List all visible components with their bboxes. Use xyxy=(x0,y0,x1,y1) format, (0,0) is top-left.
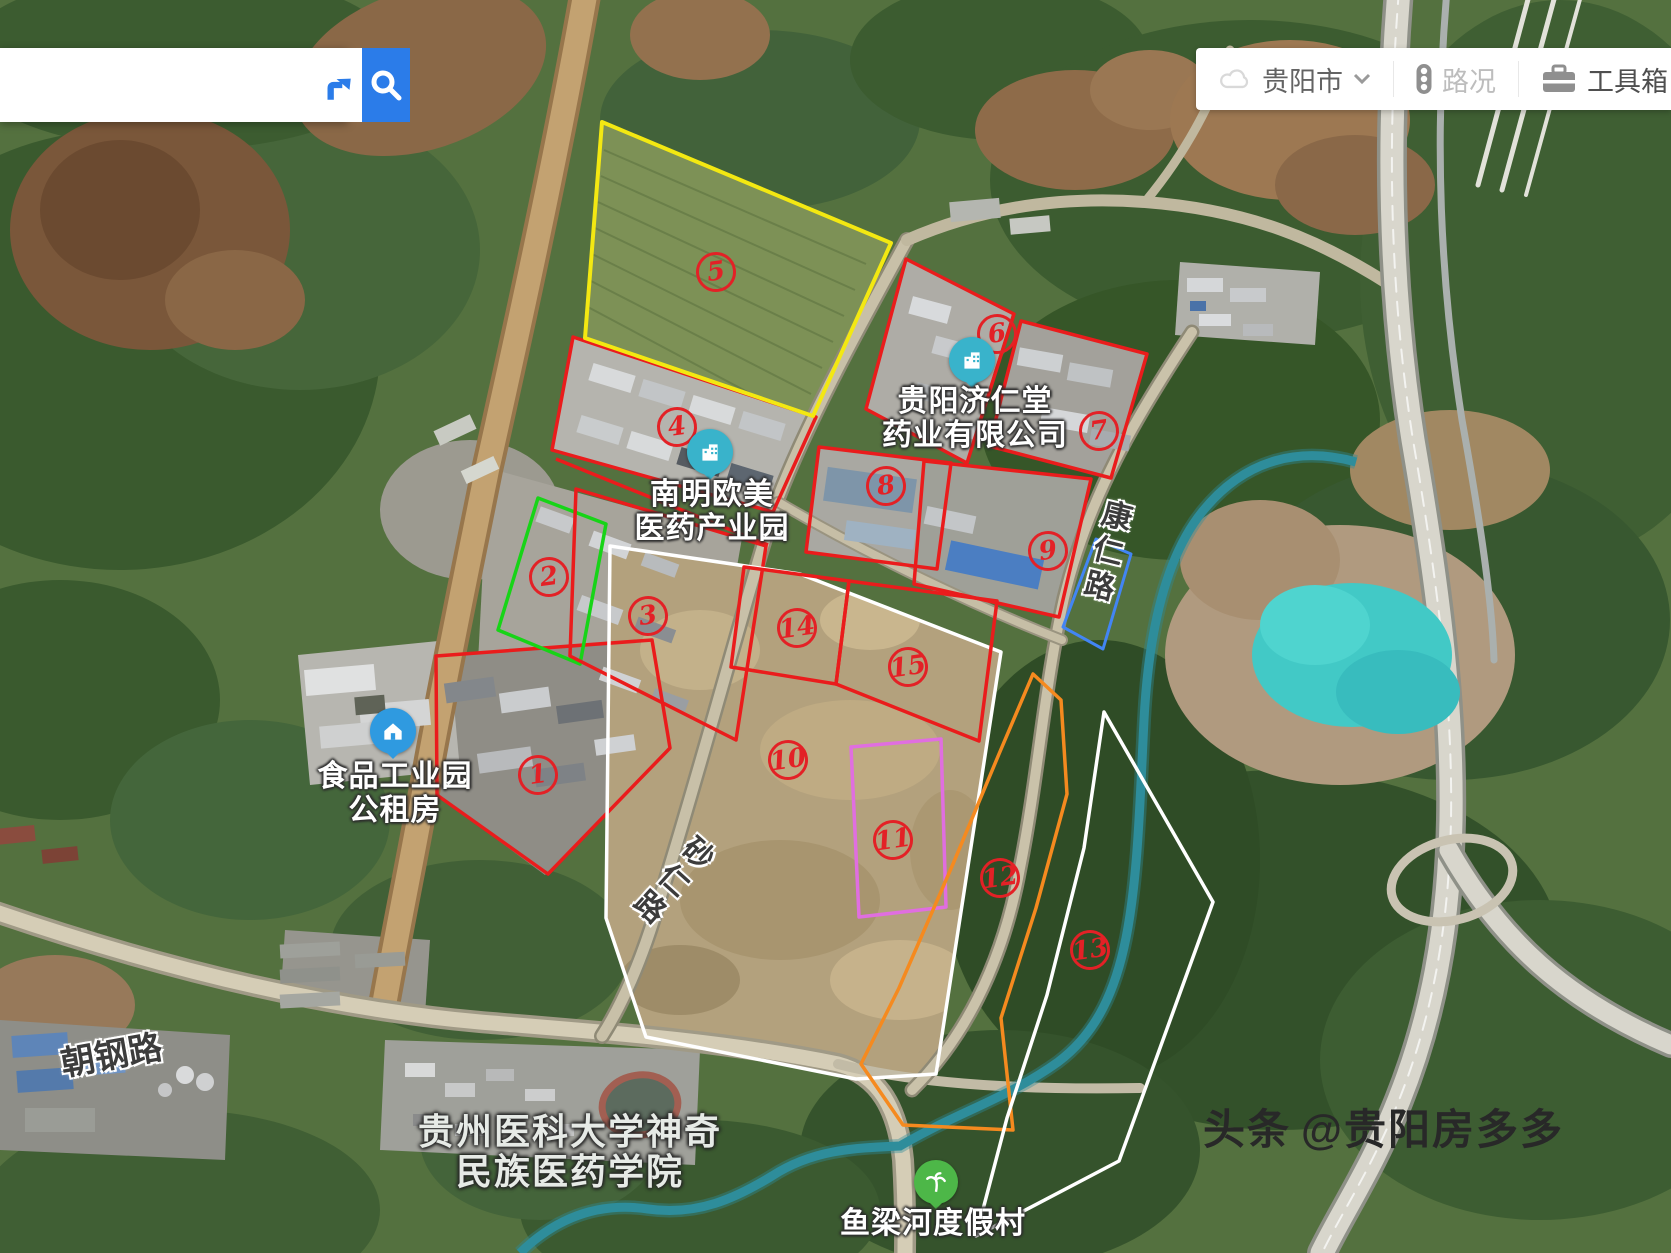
area-label-university: 贵州医科大学神奇 民族医药学院 xyxy=(418,1112,722,1192)
toolbox-icon xyxy=(1541,64,1577,94)
poi-marker-oumei[interactable] xyxy=(687,429,733,475)
weather-cloud-icon xyxy=(1218,66,1252,92)
watermark-handle: @贵阳房多多 xyxy=(1301,1106,1564,1153)
search-input[interactable] xyxy=(0,48,312,122)
house-icon xyxy=(380,718,406,744)
poi-marker-shipin[interactable] xyxy=(370,708,416,754)
building-icon xyxy=(959,347,985,373)
map-toolbar: 贵阳市 路况 工具箱 xyxy=(1196,48,1671,110)
chevron-down-icon xyxy=(1353,73,1371,85)
city-name: 贵阳市 xyxy=(1262,60,1343,99)
traffic-toggle[interactable]: 路况 xyxy=(1416,60,1496,99)
poi-marker-yuliang[interactable] xyxy=(914,1160,958,1204)
poi-label-oumei: 南明欧美 医药产业园 xyxy=(635,478,790,546)
building-icon xyxy=(697,439,723,465)
search-icon xyxy=(368,67,404,103)
search-button[interactable] xyxy=(362,48,410,122)
watermark: 头条@贵阳房多多 xyxy=(1203,1096,1564,1157)
poi-label-yuliang: 鱼梁河度假村 xyxy=(840,1207,1026,1241)
poi-label-shipin: 食品工业园 公租房 xyxy=(318,760,473,828)
search-bar xyxy=(0,48,348,122)
directions-button[interactable] xyxy=(312,48,362,122)
map-viewport[interactable]: 1 2 3 4 5 6 7 8 9 10 11 12 13 14 15 贵阳济仁… xyxy=(0,0,1671,1253)
city-selector[interactable]: 贵阳市 xyxy=(1218,60,1371,99)
toolbar-divider xyxy=(1518,61,1519,97)
traffic-light-icon xyxy=(1416,64,1432,94)
route-arrow-icon xyxy=(318,66,356,104)
poi-marker-jirentang[interactable] xyxy=(949,337,995,383)
poi-label-jirentang: 贵阳济仁堂 药业有限公司 xyxy=(882,385,1068,453)
watermark-brand: 头条 xyxy=(1203,1106,1291,1153)
palm-tree-icon xyxy=(924,1170,948,1194)
traffic-label: 路况 xyxy=(1442,60,1496,99)
toolbox-label: 工具箱 xyxy=(1587,60,1668,99)
satellite-map[interactable] xyxy=(0,0,1671,1253)
toolbox-button[interactable]: 工具箱 xyxy=(1541,60,1668,99)
toolbar-divider xyxy=(1393,61,1394,97)
